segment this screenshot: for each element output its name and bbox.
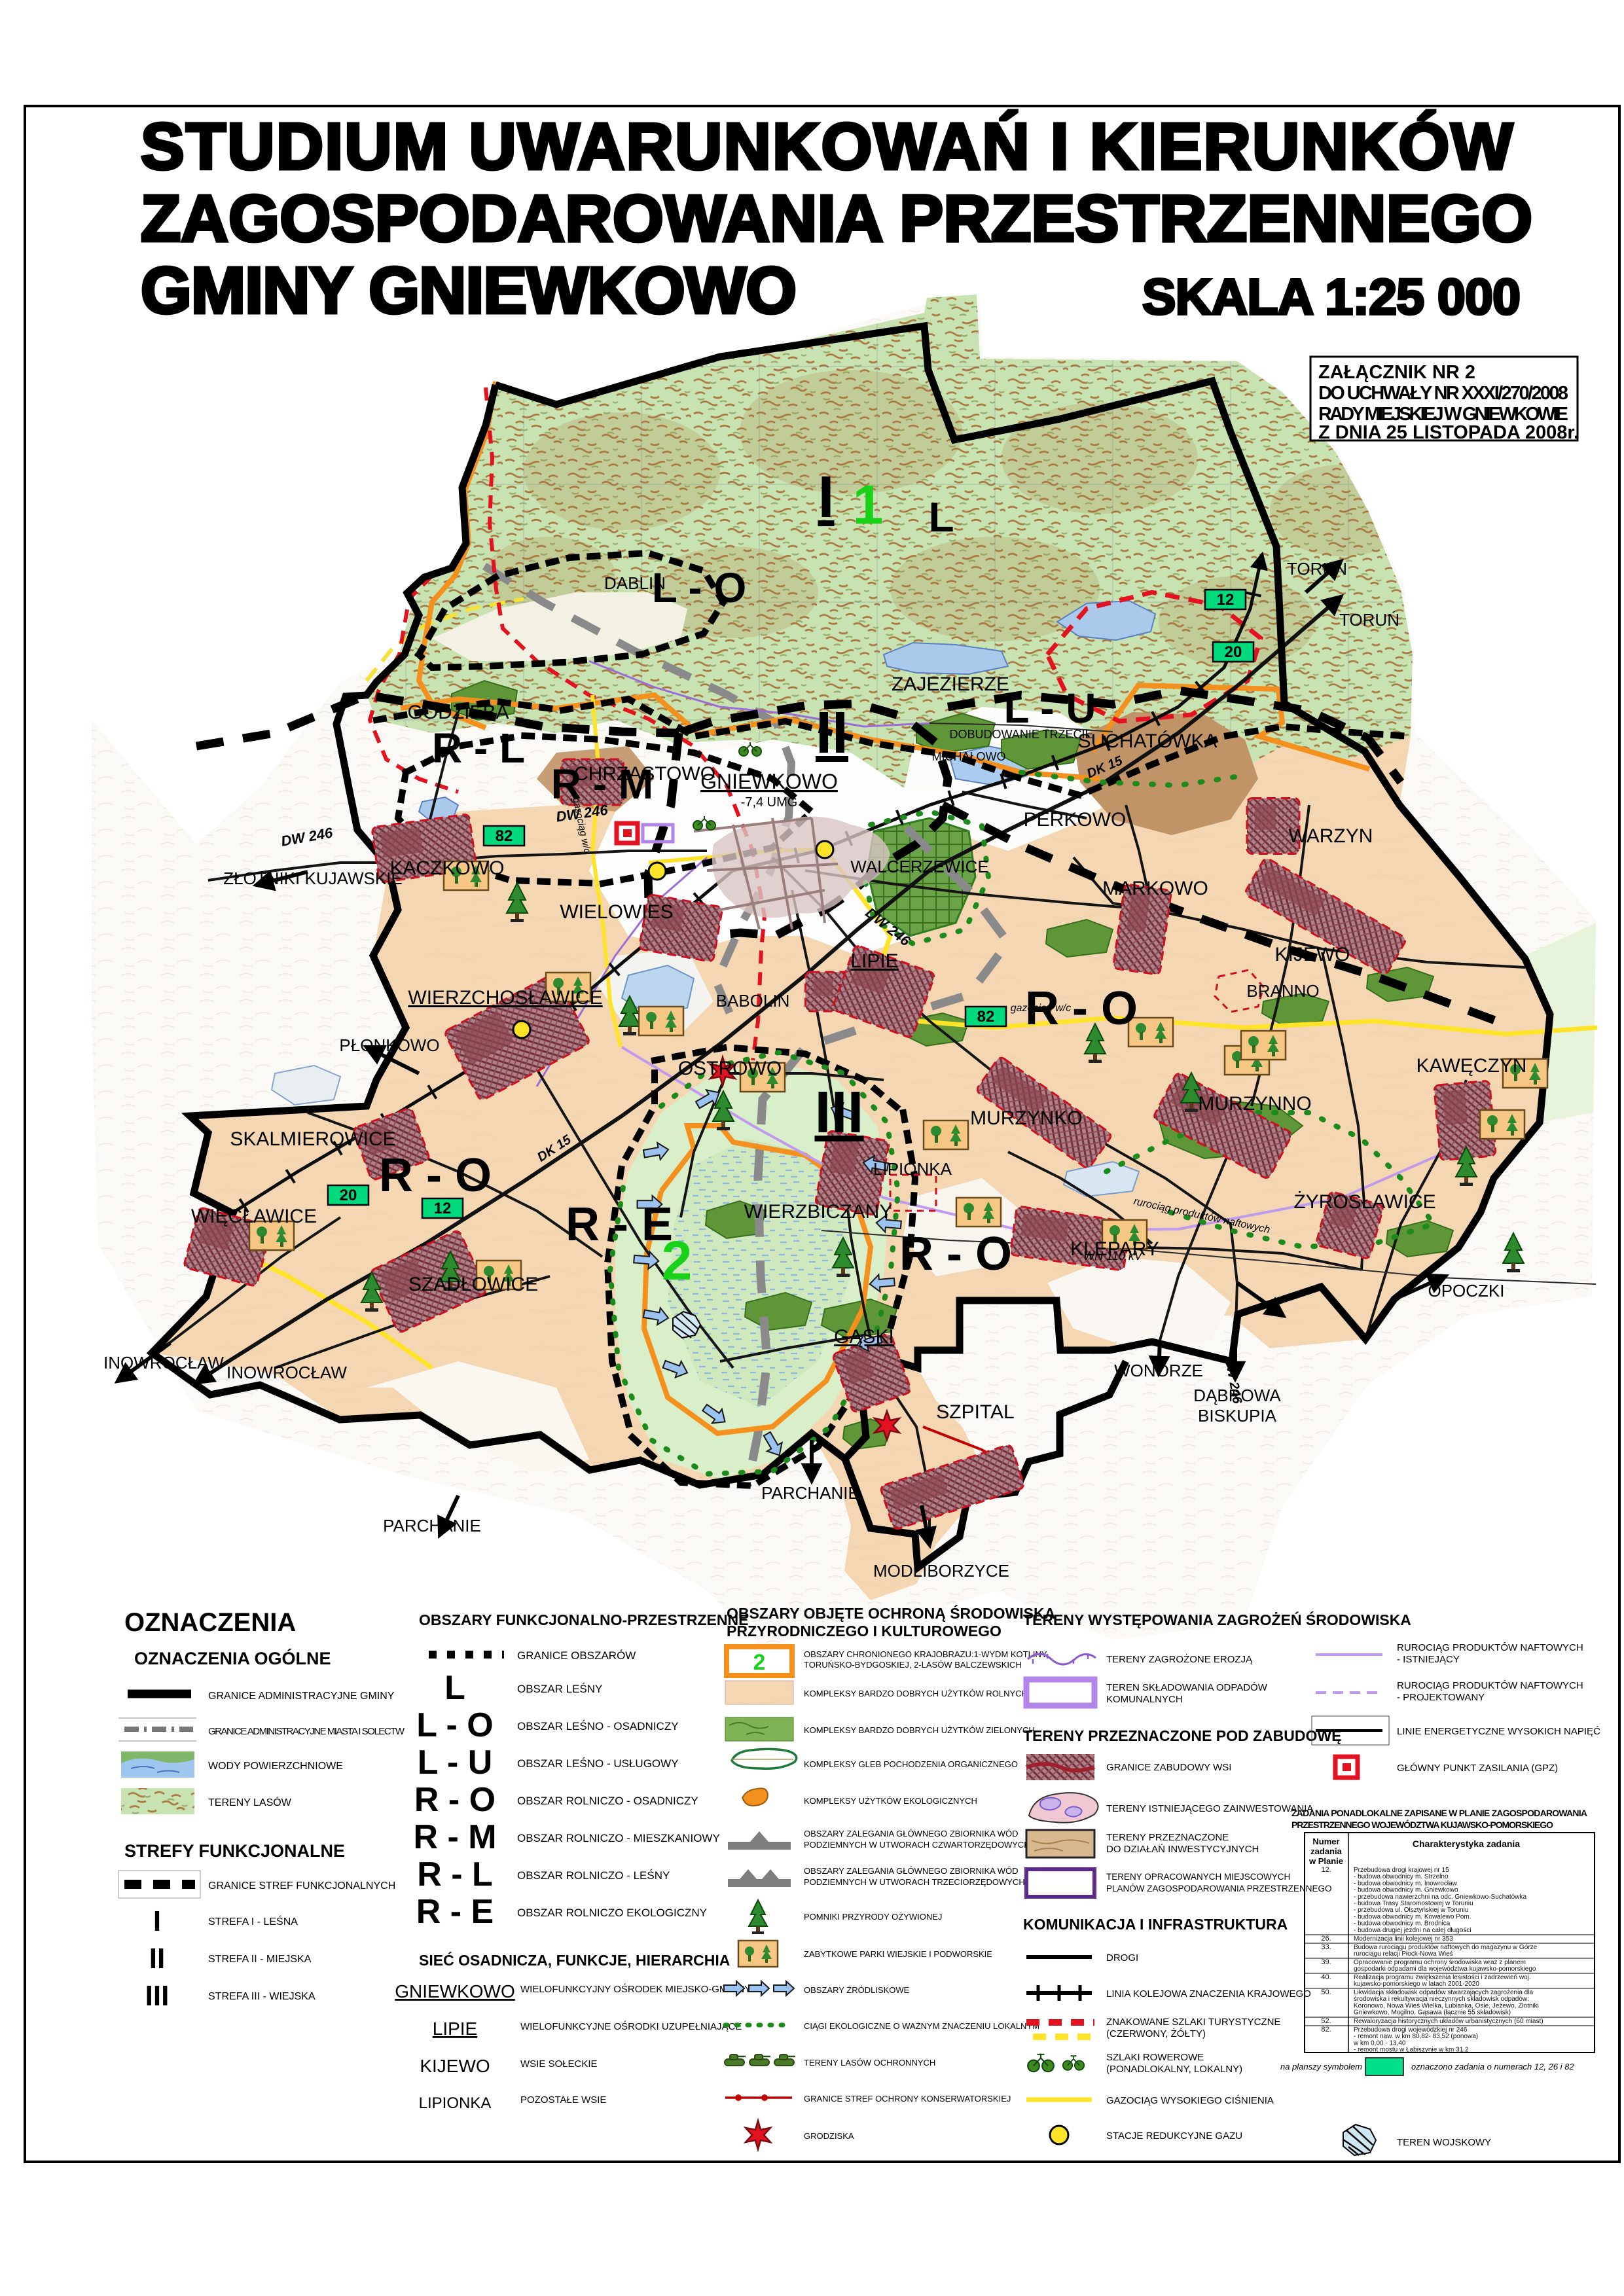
svg-text:GRANICE ADMINISTRACYJNE MIASTA: GRANICE ADMINISTRACYJNE MIASTA I SOLECTW (208, 1726, 405, 1737)
svg-text:1: 1 (853, 474, 884, 535)
svg-text:STREFY FUNKCJONALNE: STREFY FUNKCJONALNE (124, 1841, 345, 1861)
svg-text:WIELOFUNKCYJNE OŚRODKI UZUPEŁN: WIELOFUNKCYJNE OŚRODKI UZUPEŁNIAJĄCE (520, 2020, 742, 2032)
svg-text:na planszy symbolem: na planszy symbolem (1280, 2062, 1362, 2072)
svg-text:II: II (816, 700, 848, 766)
svg-text:SZPITAL: SZPITAL (936, 1401, 1014, 1423)
svg-text:LIPIE: LIPIE (433, 2018, 477, 2039)
svg-text:OBSZAR LEŚNO - USŁUGOWY: OBSZAR LEŚNO - USŁUGOWY (517, 1757, 679, 1770)
svg-text:OZNACZENIA OGÓLNE: OZNACZENIA OGÓLNE (134, 1648, 331, 1668)
svg-text:OBSZAR ROLNICZO - OSADNICZY: OBSZAR ROLNICZO - OSADNICZY (517, 1795, 698, 1807)
svg-text:Numer: Numer (1312, 1837, 1339, 1846)
svg-text:DO DZIAŁAŃ INWESTYCYJNYCH: DO DZIAŁAŃ INWESTYCYJNYCH (1106, 1844, 1259, 1855)
svg-text:BABOLIN: BABOLIN (716, 991, 790, 1011)
svg-text:PŁONKOWO: PŁONKOWO (339, 1035, 439, 1055)
svg-text:R - L: R - L (432, 725, 525, 772)
svg-text:OPOCZKI: OPOCZKI (1428, 1281, 1504, 1300)
svg-text:INOWROCŁAW: INOWROCŁAW (226, 1363, 347, 1382)
svg-text:INOWROCŁAW: INOWROCŁAW (103, 1353, 224, 1372)
svg-text:R - L: R - L (417, 1856, 493, 1893)
svg-text:KACZKOWO: KACZKOWO (389, 857, 504, 879)
svg-text:PARCHANIE: PARCHANIE (761, 1483, 859, 1503)
svg-text:OBSZARY ZALEGANIA GŁÓWNEGO ZBI: OBSZARY ZALEGANIA GŁÓWNEGO ZBIORNIKA WÓD (804, 1866, 1018, 1876)
svg-text:R - M: R - M (551, 761, 653, 808)
svg-text:40.: 40. (1321, 1973, 1331, 1981)
svg-text:PERKOWO: PERKOWO (1024, 809, 1127, 831)
svg-text:MARKOWO: MARKOWO (1102, 878, 1208, 899)
svg-text:LINIA KOLEJOWA ZNACZENIA KRAJO: LINIA KOLEJOWA ZNACZENIA KRAJOWEGO (1106, 1988, 1311, 2000)
svg-text:WARZYN: WARZYN (1289, 825, 1373, 847)
svg-text:SKALMIEROWICE: SKALMIEROWICE (230, 1128, 395, 1150)
svg-text:OBSZARY ŹRÓDLISKOWE: OBSZARY ŹRÓDLISKOWE (804, 1985, 910, 1995)
svg-text:52.: 52. (1321, 2017, 1331, 2025)
svg-text:L - O: L - O (416, 1706, 493, 1744)
svg-text:MODLIBORZYCE: MODLIBORZYCE (873, 1561, 1009, 1581)
svg-text:20: 20 (340, 1187, 357, 1204)
svg-text:PRZYRODNICZEGO I KULTUROWEGO: PRZYRODNICZEGO I KULTUROWEGO (727, 1623, 1001, 1640)
svg-text:w Planie: w Planie (1308, 1856, 1343, 1866)
svg-text:POZOSTAŁE WSIE: POZOSTAŁE WSIE (520, 2094, 606, 2106)
svg-text:OZNACZENIA: OZNACZENIA (124, 1608, 296, 1637)
svg-text:R - O: R - O (899, 1228, 1012, 1280)
svg-text:L - O: L - O (652, 564, 747, 611)
svg-text:GRANICE STREF OCHRONY KONSERWA: GRANICE STREF OCHRONY KONSERWATORSKIEJ (804, 2094, 1011, 2104)
svg-text:OBSZARY FUNKCJONALNO-PRZESTRZE: OBSZARY FUNKCJONALNO-PRZESTRZENNE (419, 1611, 748, 1628)
svg-text:KIJEWO: KIJEWO (1274, 944, 1350, 965)
svg-text:II: II (149, 1943, 165, 1975)
svg-text:DO UCHWAŁY NR XXXI/270/2008: DO UCHWAŁY NR XXXI/270/2008 (1318, 383, 1568, 404)
svg-text:MURZYNKO: MURZYNKO (970, 1107, 1083, 1129)
svg-text:39.: 39. (1321, 1958, 1331, 1966)
svg-text:PODZIEMNYCH W UTWORACH CZWARTO: PODZIEMNYCH W UTWORACH CZWARTORZĘDOWYCH (804, 1840, 1030, 1850)
svg-text:SKALA 1:25 000: SKALA 1:25 000 (1142, 269, 1521, 325)
svg-text:ZABYTKOWE PARKI WIEJSKIE I POD: ZABYTKOWE PARKI WIEJSKIE I PODWORSKIE (804, 1949, 992, 1959)
svg-text:WALCERZEWICE: WALCERZEWICE (850, 857, 988, 876)
svg-text:OBSZAR LEŚNO - OSADNICZY: OBSZAR LEŚNO - OSADNICZY (517, 1720, 679, 1732)
svg-text:gazociąg w/c: gazociąg w/c (1011, 1003, 1072, 1014)
svg-text:L: L (444, 1669, 465, 1707)
svg-text:GNIEWKOWO: GNIEWKOWO (700, 770, 838, 793)
svg-text:DROGI: DROGI (1106, 1952, 1138, 1964)
svg-text:ZADANIA PONADLOKALNE ZAPISANE: ZADANIA PONADLOKALNE ZAPISANE W PLANIE Z… (1291, 1808, 1587, 1818)
svg-text:SUCHATÓWKA: SUCHATÓWKA (1078, 730, 1218, 752)
svg-text:LIPIONKA: LIPIONKA (873, 1159, 952, 1179)
svg-text:- PROJEKTOWANY: - PROJEKTOWANY (1397, 1692, 1485, 1703)
svg-text:GRANICE STREF FUNKCJONALNYCH: GRANICE STREF FUNKCJONALNYCH (208, 1880, 395, 1892)
svg-text:MICHAŁOWO: MICHAŁOWO (931, 750, 1005, 763)
svg-text:LINIE ENERGETYCZNE WYSOKICH NA: LINIE ENERGETYCZNE WYSOKICH NAPIĘĆ (1397, 1726, 1600, 1737)
svg-text:- remont mostu w Łabiszynie w: - remont mostu w Łabiszynie w km 31,2 (1354, 2047, 1469, 2054)
svg-text:Rewaloryzacja historycznych uk: Rewaloryzacja historycznych układów urba… (1354, 2018, 1543, 2025)
svg-text:82: 82 (496, 827, 513, 845)
svg-text:TERENY PRZEZNACZONE POD ZABUDO: TERENY PRZEZNACZONE POD ZABUDOWĘ (1023, 1727, 1341, 1744)
svg-text:R - O: R - O (414, 1781, 496, 1819)
svg-text:Charakterystyka zadania: Charakterystyka zadania (1413, 1839, 1520, 1849)
svg-text:PODZIEMNYCH W UTWORACH TRZECIO: PODZIEMNYCH W UTWORACH TRZECIORZĘDOWYCH (804, 1877, 1025, 1887)
svg-text:TORUŃ: TORUŃ (1287, 559, 1347, 579)
svg-text:12: 12 (434, 1200, 452, 1217)
svg-text:LIPIE: LIPIE (850, 950, 898, 972)
svg-text:(CZERWONY, ŻÓŁTY): (CZERWONY, ŻÓŁTY) (1106, 2028, 1206, 2039)
svg-text:ZNAKOWANE SZLAKI TURYSTYCZNE: ZNAKOWANE SZLAKI TURYSTYCZNE (1106, 2017, 1280, 2028)
svg-text:BRANNO: BRANNO (1246, 981, 1319, 1001)
svg-text:WODY POWIERZCHNIOWE: WODY POWIERZCHNIOWE (208, 1761, 343, 1772)
svg-text:TERENY WYSTĘPOWANIA ZAGROŻEŃ Ś: TERENY WYSTĘPOWANIA ZAGROŻEŃ ŚRODOWISKA (1023, 1611, 1411, 1628)
svg-text:POMNIKI PRZYRODY OŻYWIONEJ: POMNIKI PRZYRODY OŻYWIONEJ (804, 1912, 942, 1922)
svg-text:OBSZAR ROLNICZO EKOLOGICZNY: OBSZAR ROLNICZO EKOLOGICZNY (517, 1907, 707, 1919)
svg-text:KOMUNALNYCH: KOMUNALNYCH (1106, 1694, 1183, 1705)
svg-text:STREFA I - LEŚNA: STREFA I - LEŚNA (208, 1915, 298, 1928)
svg-text:TEREN WOJSKOWY: TEREN WOJSKOWY (1397, 2137, 1491, 2148)
svg-text:L: L (928, 493, 954, 541)
svg-text:TORUŃ: TORUŃ (1339, 610, 1399, 630)
svg-text:GRANICE ZABUDOWY WSI: GRANICE ZABUDOWY WSI (1106, 1762, 1231, 1773)
svg-text:OBSZAR LEŚNY: OBSZAR LEŚNY (517, 1683, 602, 1695)
svg-text:GRODZISKA: GRODZISKA (804, 2131, 854, 2141)
svg-text:(PONADLOKALNY, LOKALNY): (PONADLOKALNY, LOKALNY) (1106, 2064, 1242, 2075)
svg-text:OSTROWO: OSTROWO (678, 1058, 782, 1079)
svg-text:TERENY PRZEZNACZONE: TERENY PRZEZNACZONE (1106, 1832, 1229, 1843)
svg-text:OBSZARY CHRONIONEGO KRAJOBRAZU: OBSZARY CHRONIONEGO KRAJOBRAZU:1-WYDM KO… (804, 1649, 1047, 1659)
svg-text:SZLAKI ROWEROWE: SZLAKI ROWEROWE (1106, 2052, 1204, 2063)
svg-text:SIEĆ OSADNICZA, FUNKCJE, HIERA: SIEĆ OSADNICZA, FUNKCJE, HIERARCHIA (419, 1951, 730, 1969)
svg-text:PARCHANIE: PARCHANIE (383, 1516, 481, 1535)
svg-text:KOMPLEKSY UŻYTKÓW EKOLOGICZNYC: KOMPLEKSY UŻYTKÓW EKOLOGICZNYCH (804, 1796, 977, 1806)
svg-text:ŻYROSŁAWICE: ŻYROSŁAWICE (1293, 1191, 1435, 1213)
svg-text:STACJE REDUKCYJNE GAZU: STACJE REDUKCYJNE GAZU (1106, 2130, 1242, 2142)
svg-text:ZAŁĄCZNIK NR 2: ZAŁĄCZNIK NR 2 (1318, 362, 1475, 383)
svg-text:2: 2 (753, 1650, 766, 1675)
svg-text:L - U: L - U (1003, 685, 1096, 732)
svg-text:STREFA II - MIEJSKA: STREFA II - MIEJSKA (208, 1954, 312, 1965)
svg-text:R - M: R - M (413, 1818, 496, 1856)
svg-text:III: III (145, 1980, 170, 2012)
svg-text:WONORZE: WONORZE (1114, 1361, 1203, 1380)
svg-text:zadania: zadania (1310, 1846, 1342, 1856)
svg-text:KOMPLEKSY GLEB POCHODZENIA ORG: KOMPLEKSY GLEB POCHODZENIA ORGANICZNEGO (804, 1759, 1018, 1769)
svg-text:TORUŃSKO-BYDGOSKIEJ, 2-LASÓW B: TORUŃSKO-BYDGOSKIEJ, 2-LASÓW BALCZEWSKIC… (804, 1660, 1022, 1670)
svg-text:GMINY GNIEWKOWO: GMINY GNIEWKOWO (141, 254, 798, 327)
svg-text:20: 20 (1225, 643, 1242, 661)
svg-text:- ISTNIEJĄCY: - ISTNIEJĄCY (1397, 1654, 1460, 1665)
svg-text:III: III (814, 1080, 863, 1145)
svg-text:ZAGOSPODAROWANIA PRZESTRZENNEG: ZAGOSPODAROWANIA PRZESTRZENNEGO (141, 182, 1534, 255)
svg-text:- budowa drugiej jezdni na cał: - budowa drugiej jezdni na całej długośc… (1354, 1927, 1471, 1934)
svg-text:GNIEWKOWO: GNIEWKOWO (395, 1981, 515, 2001)
svg-text:ZAJEZIERZE: ZAJEZIERZE (892, 673, 1009, 695)
svg-text:WIELOWIES: WIELOWIES (560, 901, 673, 923)
svg-text:WN 110 kV: WN 110 kV (1083, 1249, 1144, 1263)
svg-text:2: 2 (662, 1230, 693, 1291)
svg-text:oznaczono zadania o numerach 1: oznaczono zadania o numerach 12, 26 i 82 (1411, 2062, 1574, 2072)
svg-text:I: I (153, 1905, 161, 1937)
svg-text:BISKUPIA: BISKUPIA (1198, 1406, 1277, 1426)
svg-text:R - E: R - E (566, 1198, 673, 1251)
svg-text:STREFA III - WIEJSKA: STREFA III - WIEJSKA (208, 1991, 316, 2002)
svg-text:OBSZARY ZALEGANIA GŁÓWNEGO ZBI: OBSZARY ZALEGANIA GŁÓWNEGO ZBIORNIKA WÓD (804, 1829, 1018, 1839)
svg-text:WIERZBICZANY: WIERZBICZANY (744, 1201, 893, 1223)
svg-text:CIĄGI EKOLOGICZNE O WAŻNYM ZNA: CIĄGI EKOLOGICZNE O WAŻNYM ZNACZENIU LOK… (804, 2021, 1039, 2031)
svg-text:GRANICE OBSZARÓW: GRANICE OBSZARÓW (517, 1649, 636, 1662)
svg-text:STUDIUM UWARUNKOWAŃ I KIERUNKÓ: STUDIUM UWARUNKOWAŃ I KIERUNKÓW (141, 110, 1514, 183)
svg-text:OBSZAR ROLNICZO - LEŚNY: OBSZAR ROLNICZO - LEŚNY (517, 1869, 670, 1882)
svg-text:KOMPLEKSY BARDZO DOBRYCH UŻYTK: KOMPLEKSY BARDZO DOBRYCH UŻYTKÓW ZIELONY… (804, 1725, 1035, 1735)
svg-text:TERENY ISTNIEJĄCEGO ZAINWESTOW: TERENY ISTNIEJĄCEGO ZAINWESTOWANIA (1106, 1803, 1313, 1814)
svg-text:TEREN SKŁADOWANIA ODPADÓW: TEREN SKŁADOWANIA ODPADÓW (1106, 1682, 1268, 1693)
svg-text:Modernizacja linii kolejowej n: Modernizacja linii kolejowej nr 353 (1354, 1935, 1453, 1943)
svg-text:GODZIEBA: GODZIEBA (407, 702, 509, 723)
svg-text:KAWĘCZYN: KAWĘCZYN (1416, 1055, 1527, 1077)
svg-text:kujawsko-pomorskiego w latach: kujawsko-pomorskiego w latach 2001-2020 (1354, 1981, 1479, 1988)
svg-text:WIELOFUNKCYJNY OŚRODEK MIEJSKO: WIELOFUNKCYJNY OŚRODEK MIEJSKO-GMINNY (520, 1983, 751, 1995)
svg-text:-7,4 UMG: -7,4 UMG (741, 795, 798, 810)
svg-text:GŁÓWNY PUNKT ZASILANIA (GPZ): GŁÓWNY PUNKT ZASILANIA (GPZ) (1397, 1763, 1558, 1774)
svg-text:12: 12 (1217, 591, 1235, 609)
svg-text:MURZYNNO: MURZYNNO (1198, 1093, 1311, 1115)
svg-text:50.: 50. (1321, 1988, 1331, 1996)
svg-text:Gniewkowo, Mogilno, Gąsawa (łą: Gniewkowo, Mogilno, Gąsawa (łącznie 55 s… (1354, 2009, 1511, 2017)
svg-text:PRZESTRZENNEGO WOJEWÓDZTWA KUJ: PRZESTRZENNEGO WOJEWÓDZTWA KUJAWSKO-POMO… (1291, 1819, 1553, 1830)
svg-text:82: 82 (977, 1008, 995, 1026)
svg-text:L - U: L - U (418, 1744, 493, 1782)
svg-text:RUROCIĄG PRODUKTÓW NAFTOWYCH: RUROCIĄG PRODUKTÓW NAFTOWYCH (1397, 1642, 1583, 1653)
svg-text:TERENY ZAGROŻONE EROZJĄ: TERENY ZAGROŻONE EROZJĄ (1106, 1653, 1253, 1665)
svg-text:ZŁOTNIKI KUJAWSKIE: ZŁOTNIKI KUJAWSKIE (223, 869, 403, 888)
svg-text:LIPIONKA: LIPIONKA (419, 2094, 492, 2112)
svg-text:I: I (818, 465, 834, 530)
svg-text:GRANICE ADMINISTRACYJNE GMINY: GRANICE ADMINISTRACYJNE GMINY (208, 1691, 395, 1702)
svg-text:OBSZAR ROLNICZO - MIESZKANIOWY: OBSZAR ROLNICZO - MIESZKANIOWY (517, 1832, 720, 1844)
svg-text:RUROCIĄG PRODUKTÓW NAFTOWYCH: RUROCIĄG PRODUKTÓW NAFTOWYCH (1397, 1680, 1583, 1691)
svg-text:Z DNIA 25 LISTOPADA 2008r.: Z DNIA 25 LISTOPADA 2008r. (1318, 422, 1579, 443)
svg-text:R - O: R - O (379, 1149, 492, 1202)
svg-text:KOMPLEKSY BARDZO DOBRYCH UŻYTK: KOMPLEKSY BARDZO DOBRYCH UŻYTKÓW ROLNYCH (804, 1689, 1028, 1698)
svg-text:KIJEWO: KIJEWO (420, 2056, 490, 2076)
svg-text:12.: 12. (1321, 1866, 1331, 1874)
svg-text:SZADŁOWICE: SZADŁOWICE (408, 1274, 538, 1295)
svg-text:82.: 82. (1321, 2026, 1331, 2034)
svg-text:rurociągu relacji Płock-Nowa W: rurociągu relacji Płock-Nowa Wieś (1354, 1950, 1453, 1958)
svg-text:OBSZARY OBJĘTE OCHRONĄ ŚRODOWI: OBSZARY OBJĘTE OCHRONĄ ŚRODOWISKA (727, 1604, 1055, 1622)
svg-text:WSIE SOŁECKIE: WSIE SOŁECKIE (520, 2058, 598, 2070)
svg-text:GAZOCIĄG WYSOKIEGO CIŚNIENIA: GAZOCIĄG WYSOKIEGO CIŚNIENIA (1106, 2094, 1274, 2106)
svg-text:PLANÓW ZAGOSPODAROWANIA PRZEST: PLANÓW ZAGOSPODAROWANIA PRZESTRZENNEGO (1106, 1884, 1332, 1893)
svg-text:33.: 33. (1321, 1943, 1331, 1951)
svg-text:WIERZCHOSŁAWICE: WIERZCHOSŁAWICE (408, 987, 602, 1009)
svg-text:GĄSKI: GĄSKI (834, 1326, 894, 1348)
svg-text:KOMUNIKACJA I INFRASTRUKTURA: KOMUNIKACJA I INFRASTRUKTURA (1023, 1916, 1288, 1933)
svg-text:gospodarki odpadami dla wojewó: gospodarki odpadami dla województwa kuja… (1354, 1965, 1536, 1973)
svg-text:26.: 26. (1321, 1935, 1331, 1943)
svg-text:R - E: R - E (416, 1893, 494, 1931)
svg-text:TERENY OPRACOWANYCH MIEJSCOWYC: TERENY OPRACOWANYCH MIEJSCOWYCH (1106, 1872, 1290, 1882)
svg-text:TERENY LASÓW: TERENY LASÓW (208, 1796, 292, 1808)
svg-text:WIĘCŁAWICE: WIĘCŁAWICE (191, 1206, 317, 1227)
svg-text:TERENY LASÓW OCHRONNYCH: TERENY LASÓW OCHRONNYCH (804, 2058, 935, 2068)
